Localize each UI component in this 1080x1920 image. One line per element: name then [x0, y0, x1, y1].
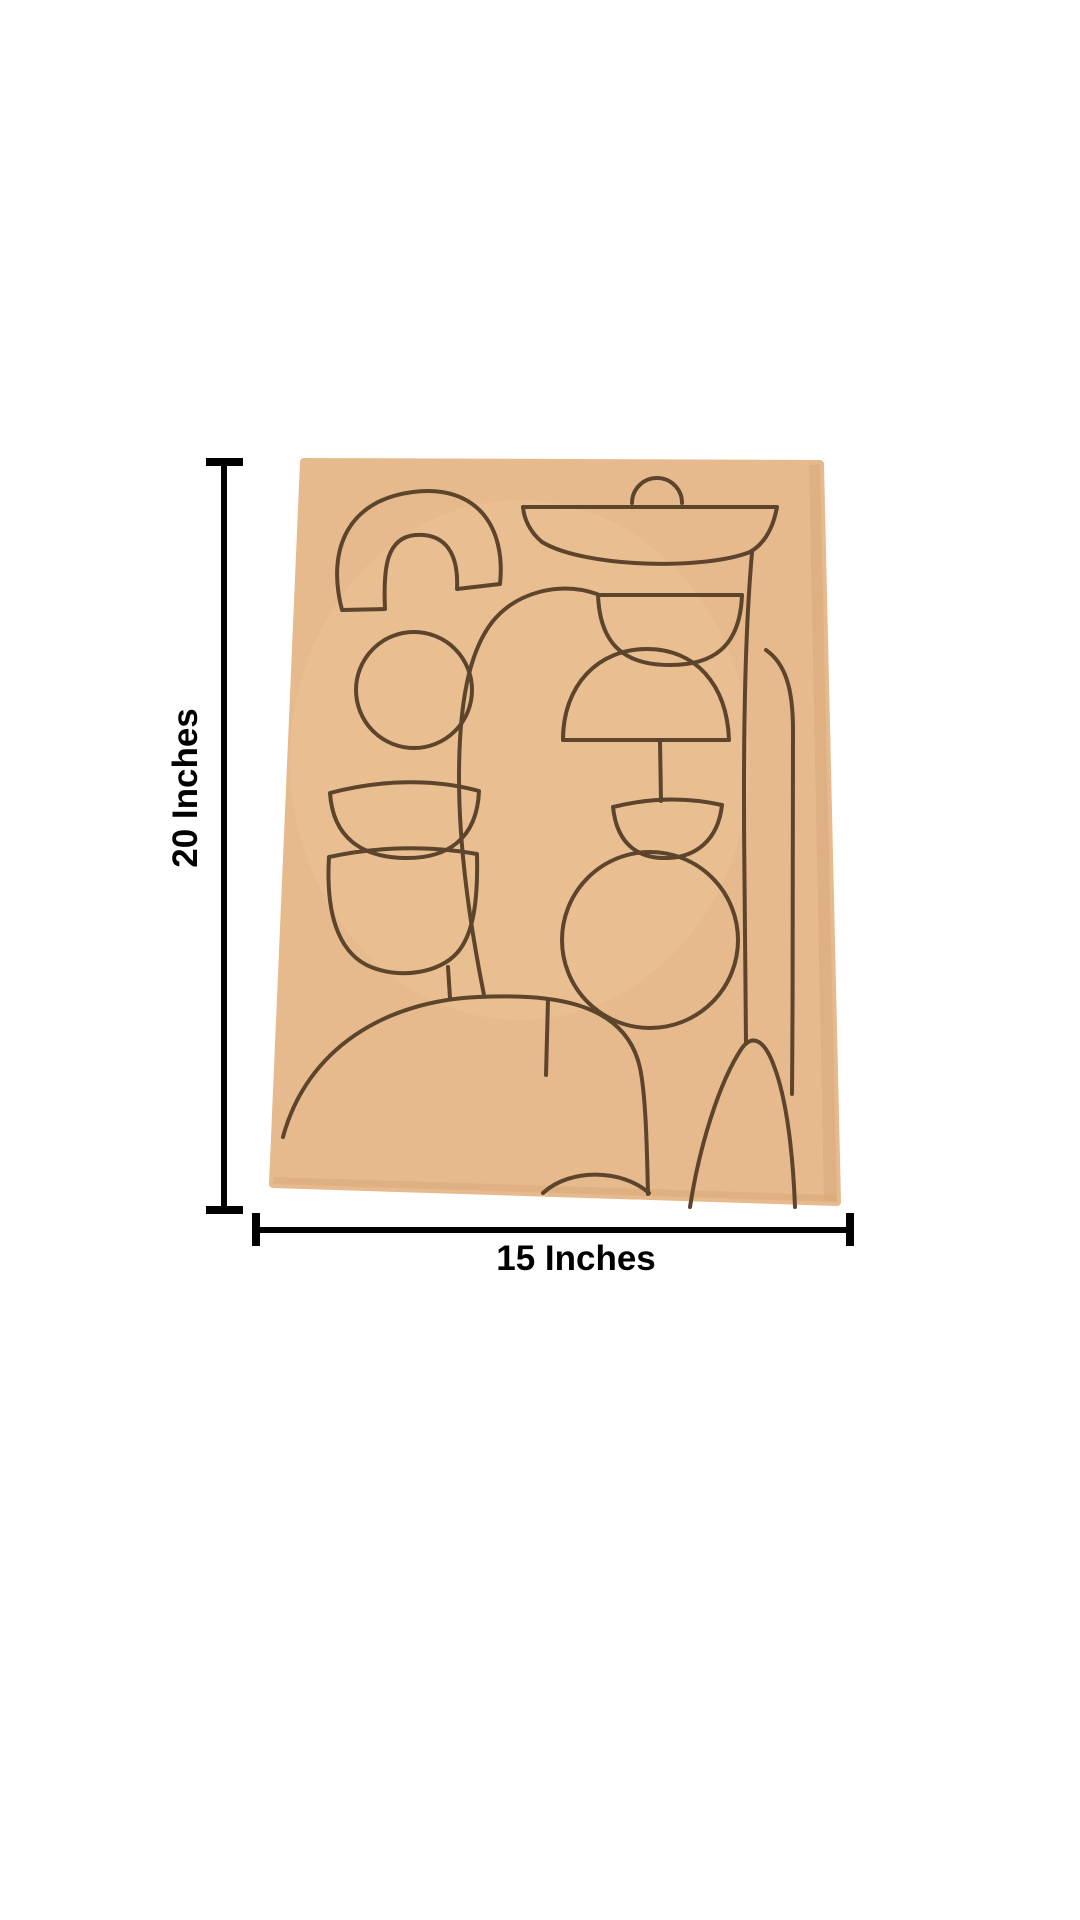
- board-highlight: [290, 500, 750, 1020]
- product-dimension-image: 20 Inches 15 Inches: [0, 0, 1080, 1920]
- dimension-diagram-canvas: [0, 0, 1080, 1920]
- width-dimension-label: 15 Inches: [496, 1239, 656, 1279]
- dome-divider-line: [546, 1000, 548, 1075]
- cup-stem-line: [448, 967, 450, 998]
- craft-board: [273, 462, 837, 1202]
- fountain-stem-line: [660, 741, 661, 801]
- height-dimension-label: 20 Inches: [166, 708, 206, 868]
